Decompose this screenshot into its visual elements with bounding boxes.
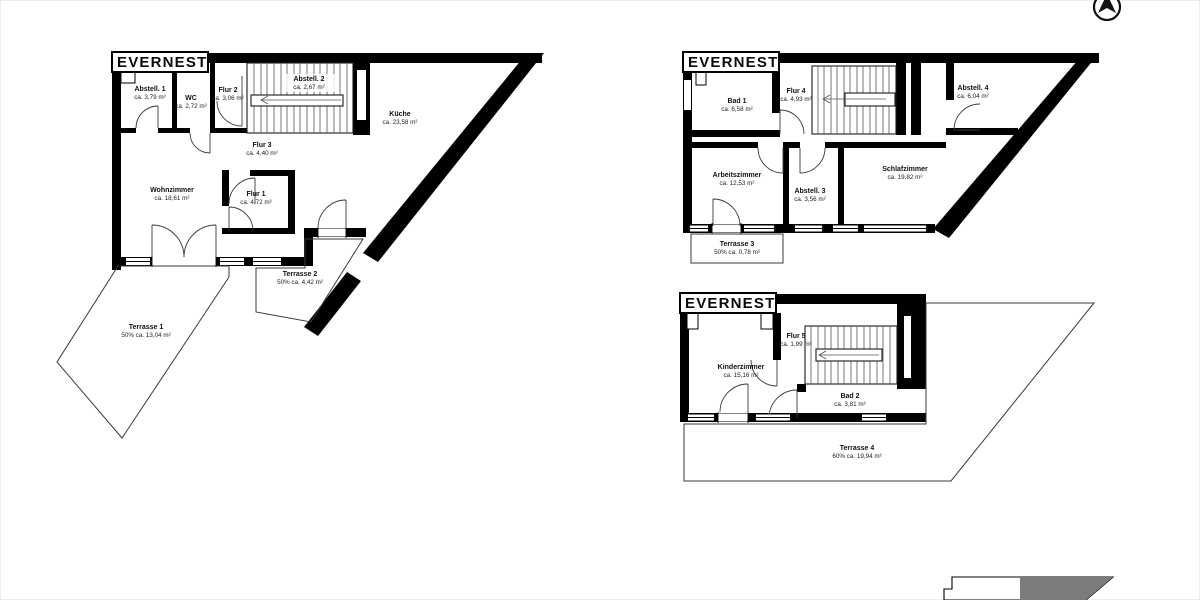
plan3-bad2-wall-stub [797, 384, 806, 392]
room-area: 50% ca. 13,04 m² [121, 332, 170, 339]
room-name: Terrasse 1 [129, 324, 164, 331]
plan1-diagonal-wall-upper [363, 53, 544, 262]
north-arrow-icon [1094, 0, 1120, 20]
room-area: ca. 18,61 m² [155, 195, 190, 202]
plan3-right-wall [897, 304, 926, 389]
plan2-shaft-wall [911, 63, 921, 135]
room-area: ca. 3,79 m² [134, 94, 166, 101]
room-area: 50% ca. 0,78 m² [714, 249, 760, 256]
plan2-abstell4-door-gap [946, 100, 954, 128]
door-arc-terrace3 [713, 199, 740, 226]
room-label-schlafzimmer: Schlafzimmer ca. 19,82 m² [882, 166, 928, 181]
plan2-title-text: EVERNEST [688, 54, 778, 71]
plan1-hall-wall-c [210, 128, 247, 133]
plan3-bottom-wall [680, 413, 926, 422]
room-label-abstell-4: Abstell. 4 ca. 6,04 m² [957, 85, 989, 100]
room-label-abstell-3: Abstell. 3 ca. 3,56 m² [794, 188, 826, 203]
sheet-border [1, 1, 1200, 600]
site-keyplan [944, 577, 1113, 600]
room-area: ca. 2,67 m² [293, 84, 325, 91]
room-name: Kinderzimmer [718, 364, 765, 371]
plan1-stair-rail [251, 95, 343, 106]
door-arc-terrace-right [184, 225, 216, 257]
room-label-kueche: Küche ca. 23,58 m² [383, 111, 418, 126]
plan1-flur1-left-wall [222, 170, 229, 206]
keyplan-highlight-unit [1020, 577, 1113, 600]
plan1-title: EVERNEST [112, 52, 208, 72]
floor-plan-2: EVERNEST [683, 52, 1099, 263]
room-area: ca. 4,93 m² [780, 96, 812, 103]
room-name: Schlafzimmer [882, 166, 928, 173]
room-name: Küche [389, 111, 411, 118]
plan2-staircase [812, 66, 896, 134]
plan2-terrace3-door-gap [712, 225, 741, 233]
plan2-bad1-bottom-wall [692, 130, 780, 137]
door-arc-arbeitszimmer [758, 148, 783, 173]
room-area: ca. 6,58 m² [721, 106, 753, 113]
floorplan-canvas: EVERNEST [0, 0, 1200, 600]
room-area: ca. 2,72 m² [175, 103, 207, 110]
terrace1-outline [57, 266, 229, 438]
plan1-title-text: EVERNEST [117, 54, 207, 71]
room-label-terrasse-3: Terrasse 3 50% ca. 0,78 m² [714, 241, 760, 256]
room-area: ca. 3,06 m² [212, 95, 244, 102]
room-name: Flur 2 [218, 87, 237, 94]
plan2-left-window-slot [684, 80, 691, 110]
plan2-stair-rail [845, 93, 895, 106]
plan2-stair-right-wall [896, 63, 906, 135]
room-area: 60% ca. 19,94 m² [832, 453, 881, 460]
plan3-terrace-door-gap [718, 414, 748, 422]
room-label-arbeitszimmer: Arbeitszimmer ca. 12,53 m² [713, 172, 762, 187]
plan2-abstell4-bottom-wall [946, 128, 1018, 135]
room-name: WC [185, 95, 197, 102]
door-arc-abstell3 [800, 148, 825, 173]
floorplan-sheet: EVERNEST [0, 0, 1200, 600]
door-arc-bad1 [780, 110, 804, 134]
plan1-terraces [57, 239, 363, 438]
plan3-staircase [805, 326, 897, 384]
room-name: Abstell. 1 [134, 86, 165, 93]
plan2-abstell3-right-wall [838, 142, 844, 230]
room-label-wohnzimmer: Wohnzimmer ca. 18,61 m² [150, 187, 194, 202]
floor-plan-3: EVERNEST Flur 5 ca. 1,99 [680, 293, 1094, 481]
room-area: ca. 6,04 m² [957, 93, 989, 100]
plan1-hall-wall-b [158, 128, 190, 133]
room-name: Flur 1 [246, 191, 265, 198]
room-label-wc: WC ca. 2,72 m² [175, 95, 207, 110]
room-name: Terrasse 3 [720, 241, 755, 248]
plan1-left-wall [112, 53, 121, 270]
room-area: ca. 1,99 m² [780, 341, 812, 348]
room-area: ca. 4,40 m² [246, 150, 278, 157]
room-name: Arbeitszimmer [713, 172, 762, 179]
door-arc-terrace-left [152, 225, 184, 257]
plan1-flur1-right-wall [288, 170, 295, 234]
room-name: Bad 1 [727, 98, 746, 105]
room-area: ca. 15,16 m² [724, 372, 759, 379]
room-name: Abstell. 2 [293, 76, 324, 83]
plan1-terrace2-door-gap [318, 229, 346, 237]
room-area: ca. 4,72 m² [240, 199, 272, 206]
floor-plan-1: EVERNEST [57, 52, 544, 438]
room-area: ca. 23,58 m² [383, 119, 418, 126]
plan1-shaft-slot [357, 70, 366, 120]
room-label-flur-2: Flur 2 ca. 3,06 m² [212, 87, 244, 102]
door-arc-abstell4 [954, 104, 980, 130]
plan1-partition-abstell1-wc [172, 63, 177, 133]
plan1-french-door-gap [152, 257, 216, 267]
plan1-hall-wall-a [121, 128, 136, 133]
door-arc-terrace2 [318, 200, 346, 228]
room-label-flur-1: Flur 1 ca. 4,72 m² [240, 191, 272, 206]
room-name: Abstell. 3 [794, 188, 825, 195]
plan3-title-text: EVERNEST [685, 295, 775, 312]
room-name: Flur 3 [252, 142, 271, 149]
room-area: ca. 3,81 m² [834, 401, 866, 408]
plan2-diagonal-wall [933, 53, 1099, 238]
room-label-terrasse-2: Terrasse 2 50% ca. 4,42 m² [277, 271, 323, 286]
room-label-flur-4: Flur 4 ca. 4,93 m² [780, 88, 812, 103]
door-arc-abstell1 [136, 106, 158, 128]
room-label-abstell-1: Abstell. 1 ca. 3,79 m² [134, 86, 166, 101]
plan1-flur1-bottom-wall [222, 228, 295, 234]
room-label-bad-1: Bad 1 ca. 6,58 m² [721, 98, 753, 113]
door-arc-wc [190, 133, 210, 153]
room-label-terrasse-1: Terrasse 1 50% ca. 13,04 m² [121, 324, 170, 339]
plan1-staircase [247, 63, 353, 133]
room-label-abstell-2: Abstell. 2 ca. 2,67 m² [283, 74, 337, 92]
room-label-kinderzimmer: Kinderzimmer ca. 15,16 m² [718, 364, 765, 379]
room-name: Abstell. 4 [957, 85, 988, 92]
plan2-left-wall [683, 53, 692, 232]
room-label-terrasse-4: Terrasse 4 60% ca. 19,94 m² [832, 445, 881, 460]
plan3-right-wall-slot [904, 316, 911, 378]
plan2-title: EVERNEST [683, 52, 779, 72]
door-arc-terrace4 [720, 384, 748, 412]
room-name: Flur 5 [786, 333, 805, 340]
room-label-bad-2: Bad 2 ca. 3,81 m² [834, 393, 866, 408]
room-name: Terrasse 4 [840, 445, 875, 452]
room-name: Flur 4 [786, 88, 805, 95]
room-label-flur-3: Flur 3 ca. 4,40 m² [246, 142, 278, 157]
plan2-abstell3-left-wall [783, 142, 789, 230]
room-area: ca. 19,82 m² [888, 174, 923, 181]
room-area: ca. 12,53 m² [720, 180, 755, 187]
plan2-mid-wall-a [692, 142, 758, 148]
room-name: Wohnzimmer [150, 187, 194, 194]
room-name: Bad 2 [840, 393, 859, 400]
plan3-title: EVERNEST [680, 293, 776, 313]
door-arc-flur1-bottom [229, 207, 253, 231]
room-area: ca. 3,56 m² [794, 196, 826, 203]
room-area: 50% ca. 4,42 m² [277, 279, 323, 286]
room-name: Terrasse 2 [283, 271, 318, 278]
plan3-flur5-wall [773, 313, 781, 360]
